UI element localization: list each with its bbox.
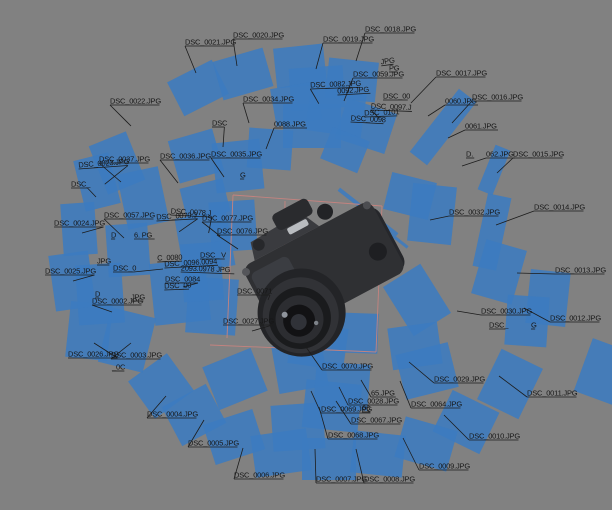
- photo-label-text: _0C: [111, 363, 126, 372]
- photo-label-text: DSC_: [71, 180, 91, 189]
- photo-label-text: DSC_0005.JPG: [188, 439, 239, 448]
- photo-label-text: DSC_0012.JPG: [550, 314, 601, 323]
- photo-label-text: DSC_0067.JPG: [351, 416, 402, 425]
- photo-label-text: D: [111, 231, 117, 240]
- photo-label-text: DSC_0013.JPG: [555, 266, 606, 275]
- photo-label-text: DSC_0018.JPG: [365, 25, 416, 34]
- photo-label-text: D.: [466, 150, 473, 159]
- photo-label: G: [531, 321, 537, 330]
- photo-label-text: DSC_0064.JPG: [411, 400, 462, 409]
- photo-label-text: DSC_0: [113, 264, 136, 273]
- photo-label: DSC_00: [383, 92, 410, 101]
- photo-label-text: DSC_00: [383, 92, 410, 101]
- photo-label-text: DSC_0077.JPG: [202, 214, 253, 223]
- photo-label: 2093.0978 JPG: [181, 263, 235, 274]
- photo-label-text: DSC_: [489, 321, 509, 330]
- photo-label-text: DSC_0037.JPG: [99, 155, 150, 164]
- photo-label-text: DSC_0007.JPG: [316, 475, 367, 484]
- photo-label: 6. PG: [134, 231, 155, 240]
- photo-label: D.: [466, 150, 474, 159]
- photo-label-text: DSC_0003.JPG: [111, 351, 162, 360]
- photo-label-text: DSC_0015.JPG: [513, 150, 564, 159]
- photo-label: DSC_00: [164, 281, 191, 291]
- photo-label-text: DSC_0021.JPG: [185, 38, 236, 47]
- photo-label-text: DSC_0011.JPG: [527, 389, 578, 398]
- photo-label-text: DSC_0057.JPG: [104, 211, 155, 220]
- photo-label-text: PG: [389, 64, 400, 73]
- photo-label-text: DSC_0032.JPG: [449, 208, 500, 217]
- photo-label-text: DSC_0024.JPG: [54, 219, 105, 228]
- photo-label-text: DSC_0070.JPG: [322, 362, 373, 371]
- photo-label-text: DSC_0009.JPG: [419, 462, 470, 471]
- photo-label-text: DSC_0008.JPG: [364, 475, 415, 484]
- photo-label: _0C: [111, 363, 126, 372]
- photo-label-text: DSC_0036.JPG: [160, 152, 211, 161]
- photo-label-text: 0060.JPG: [445, 97, 477, 106]
- photo-label: G: [240, 171, 246, 180]
- camera-plane[interactable]: [387, 322, 442, 371]
- photo-label-text: DSC_0010.JPG: [469, 432, 520, 441]
- photo-label-text: DSC_0030.JPG: [481, 307, 532, 316]
- camera-plane[interactable]: [48, 250, 95, 311]
- photo-label-text: DSC_0035.JPG: [211, 150, 262, 159]
- photo-label-text: DSC_0025.JPG: [45, 267, 96, 276]
- photo-label: JPG: [97, 257, 111, 266]
- photo-label-text: DSC_0014.JPG: [534, 203, 585, 212]
- photo-label-text: DSC_0006.JPG: [234, 471, 285, 480]
- photo-label-text: DSC_0027.JPG: [223, 317, 274, 326]
- photo-label: PG: [389, 64, 400, 73]
- photo-label-text: DSC_0019.JPG: [323, 35, 374, 44]
- photo-label-text: 0088.JPG: [274, 120, 306, 129]
- photo-label-text: G: [240, 171, 246, 180]
- photo-label-text: DSC_0022.JPG: [110, 97, 161, 106]
- photo-label: 0092.JPG: [337, 85, 370, 96]
- photo-label-text: JPG: [97, 257, 111, 266]
- photo-label-text: DSC_00: [164, 281, 191, 291]
- photo-label-text: DSC_0034.JPG: [243, 95, 294, 104]
- photo-label-text: 0092.JPG: [337, 85, 370, 96]
- photo-label: DSC_0098: [351, 113, 387, 124]
- photo-label-text: DSC_0016.JPG: [472, 93, 523, 102]
- camera-plane[interactable]: [504, 295, 549, 348]
- photo-label-text: JPG: [131, 293, 145, 302]
- photo-label-text: DSC_0029.JPG: [434, 375, 485, 384]
- photo-label-text: 0061.JPG: [465, 122, 497, 131]
- photo-label-text: DSC_0076.JPG: [217, 227, 268, 236]
- photo-label-text: DSC_0098: [351, 113, 387, 124]
- camera-plane[interactable]: [60, 202, 98, 256]
- photo-label: D: [111, 231, 117, 240]
- photo-label-text: DSC_0068.JPG: [328, 431, 379, 440]
- photo-label-text: 2093.0978 JPG: [181, 263, 231, 274]
- 3d-scene-canvas[interactable]: DSC_0021.JPGDSC_0020.JPGDSC_0018.JPGDSC_…: [0, 0, 612, 510]
- photo-label-text: DSC_0069.JPG: [321, 405, 372, 414]
- photo-label-text: 062.JPG: [486, 150, 514, 159]
- photo-label-text: G: [531, 321, 537, 330]
- photo-label-text: DSC_0004.JPG: [147, 410, 198, 419]
- photo-label-text: DSC_0071: [237, 287, 272, 296]
- photo-label-text: 6. PG: [134, 231, 153, 240]
- photo-label-text: DSC_0017.JPG: [436, 69, 487, 78]
- camera-plane[interactable]: [270, 402, 325, 452]
- model-viewport[interactable]: DSC_0021.JPGDSC_0020.JPGDSC_0018.JPGDSC_…: [0, 0, 612, 510]
- photo-label-text: DSC_0020.JPG: [233, 31, 284, 40]
- photo-label-text: DSC: [212, 119, 228, 128]
- photo-label: JPG: [131, 293, 145, 302]
- photo-label: DSC_: [489, 321, 509, 330]
